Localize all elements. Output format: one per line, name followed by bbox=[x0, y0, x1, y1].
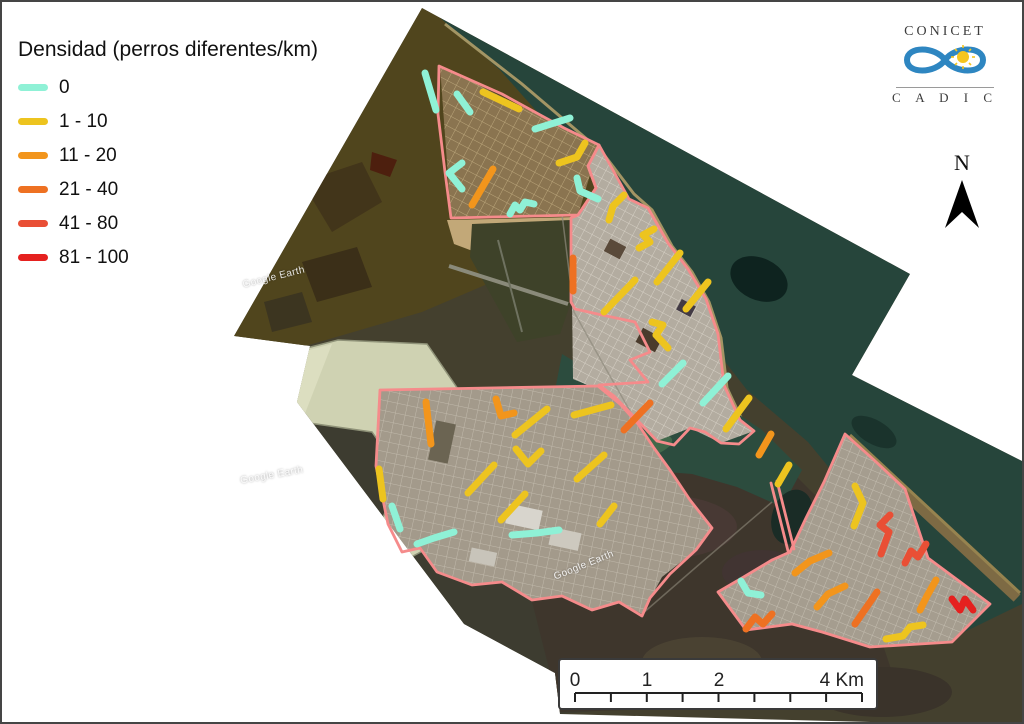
legend-item-label: 0 bbox=[59, 77, 70, 99]
density-segment bbox=[426, 402, 431, 444]
density-segment bbox=[952, 599, 973, 610]
legend-item: 41 - 80 bbox=[18, 212, 318, 235]
legend-swatch bbox=[18, 152, 48, 159]
legend-swatch bbox=[18, 254, 48, 261]
scale-bar: 0 1 2 4 Km bbox=[559, 659, 877, 709]
north-label: N bbox=[932, 150, 992, 176]
legend-swatch bbox=[18, 84, 48, 91]
legend-item-label: 1 - 10 bbox=[59, 111, 108, 133]
legend-item-label: 21 - 40 bbox=[59, 179, 118, 201]
north-arrow-icon bbox=[932, 176, 992, 232]
scale-label-0: 0 bbox=[570, 670, 581, 691]
conicet-cadic-logo: CONICET C A D I C bbox=[890, 24, 1000, 106]
north-arrow: N bbox=[932, 150, 992, 237]
legend-item: 21 - 40 bbox=[18, 178, 318, 201]
legend-item: 81 - 100 bbox=[18, 246, 318, 269]
legend-swatch bbox=[18, 186, 48, 193]
cadic-label: C A D I C bbox=[890, 90, 1000, 106]
conicet-label: CONICET bbox=[890, 24, 1000, 40]
legend-item-label: 81 - 100 bbox=[59, 247, 129, 269]
density-segment bbox=[379, 469, 383, 499]
legend-item: 0 bbox=[18, 76, 318, 99]
scale-label-1: 1 bbox=[642, 670, 653, 691]
scale-label-4km: 4 Km bbox=[820, 670, 864, 691]
legend-swatch bbox=[18, 118, 48, 125]
scale-label-2: 2 bbox=[714, 670, 725, 691]
legend-title: Densidad (perros diferentes/km) bbox=[18, 38, 318, 62]
infinity-logo-icon bbox=[897, 40, 993, 80]
legend-item-label: 11 - 20 bbox=[59, 145, 117, 167]
map-figure: 0 1 2 4 Km Densidad (perros diferentes/k… bbox=[0, 0, 1024, 724]
legend-item: 11 - 20 bbox=[18, 144, 318, 167]
legend-items: 01 - 1011 - 2021 - 4041 - 8081 - 100 bbox=[18, 76, 318, 269]
legend-item: 1 - 10 bbox=[18, 110, 318, 133]
logo-divider bbox=[896, 87, 994, 88]
legend-swatch bbox=[18, 220, 48, 227]
legend: Densidad (perros diferentes/km) 01 - 101… bbox=[18, 38, 318, 280]
legend-item-label: 41 - 80 bbox=[59, 213, 118, 235]
